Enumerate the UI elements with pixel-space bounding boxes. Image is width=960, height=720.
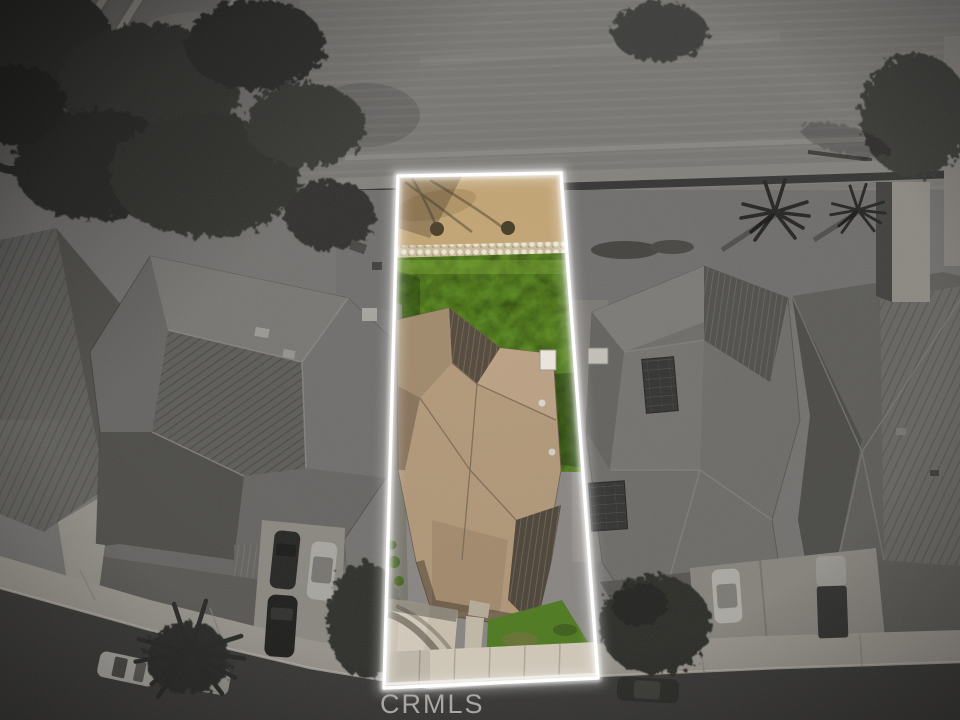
aerial-photo-canvas (0, 0, 960, 720)
corner-shadow (0, 0, 500, 420)
watermark-text: CRMLS (380, 689, 485, 720)
listing-photo[interactable]: CRMLS (0, 0, 960, 720)
